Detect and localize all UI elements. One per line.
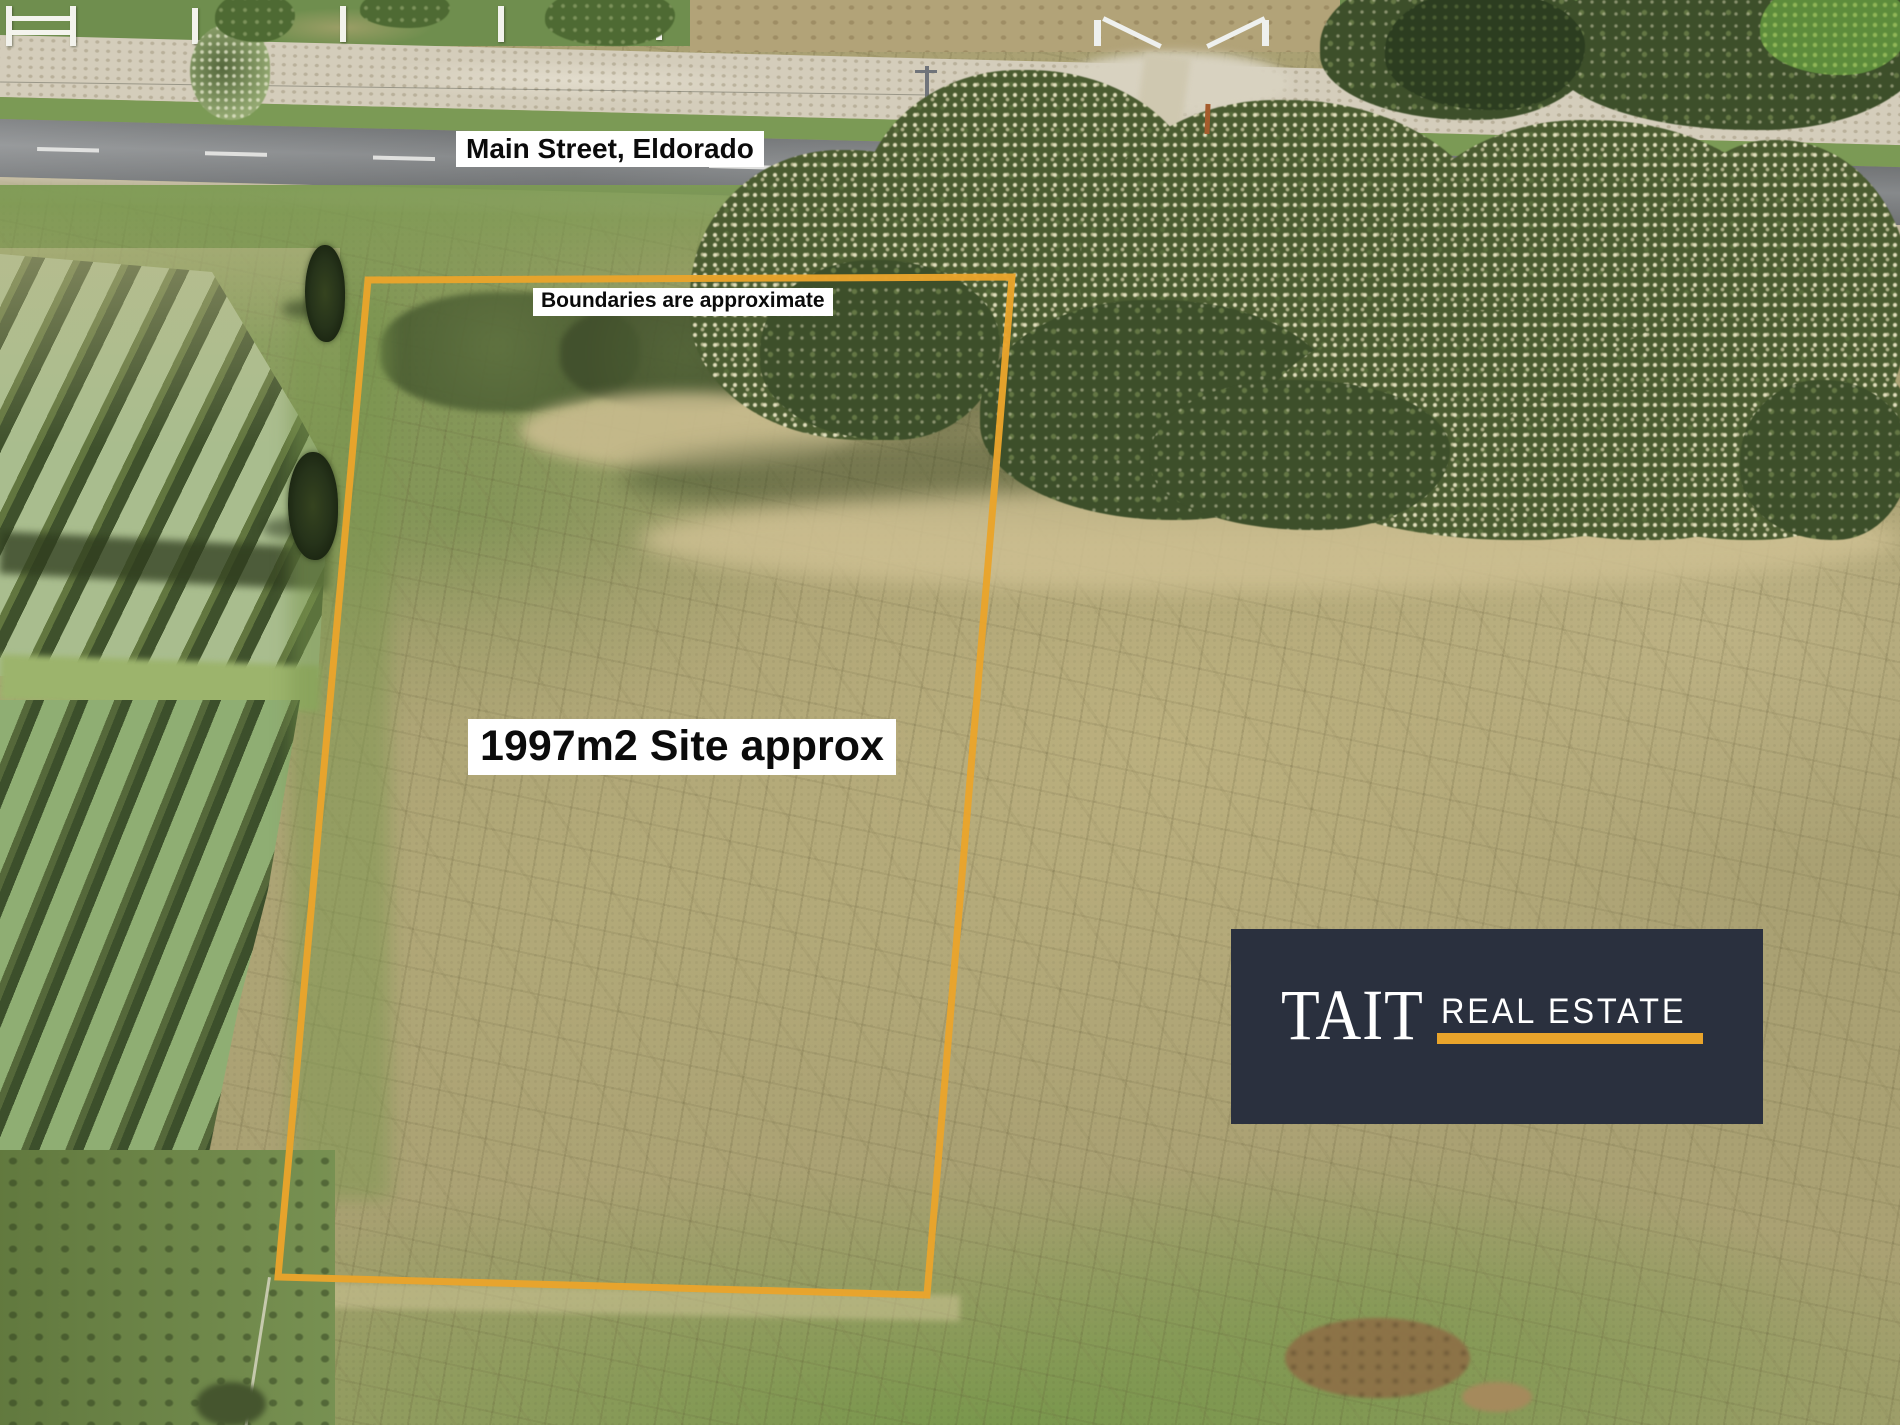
brand-tagline: REAL ESTATE <box>1441 994 1686 1029</box>
site-boundary-outline <box>278 277 1012 1295</box>
site-area-label: 1997m2 Site approx <box>468 719 896 775</box>
brand-accent-rule <box>1437 1033 1703 1044</box>
site-boundary-overlay <box>0 0 1900 1425</box>
brand-logo-panel: TAIT REAL ESTATE <box>1231 929 1763 1124</box>
aerial-photograph: Main Street, Eldorado Boundaries are app… <box>0 0 1900 1425</box>
street-name-label: Main Street, Eldorado <box>456 131 764 167</box>
boundary-note-label: Boundaries are approximate <box>533 288 833 316</box>
brand-name: TAIT <box>1281 979 1424 1051</box>
